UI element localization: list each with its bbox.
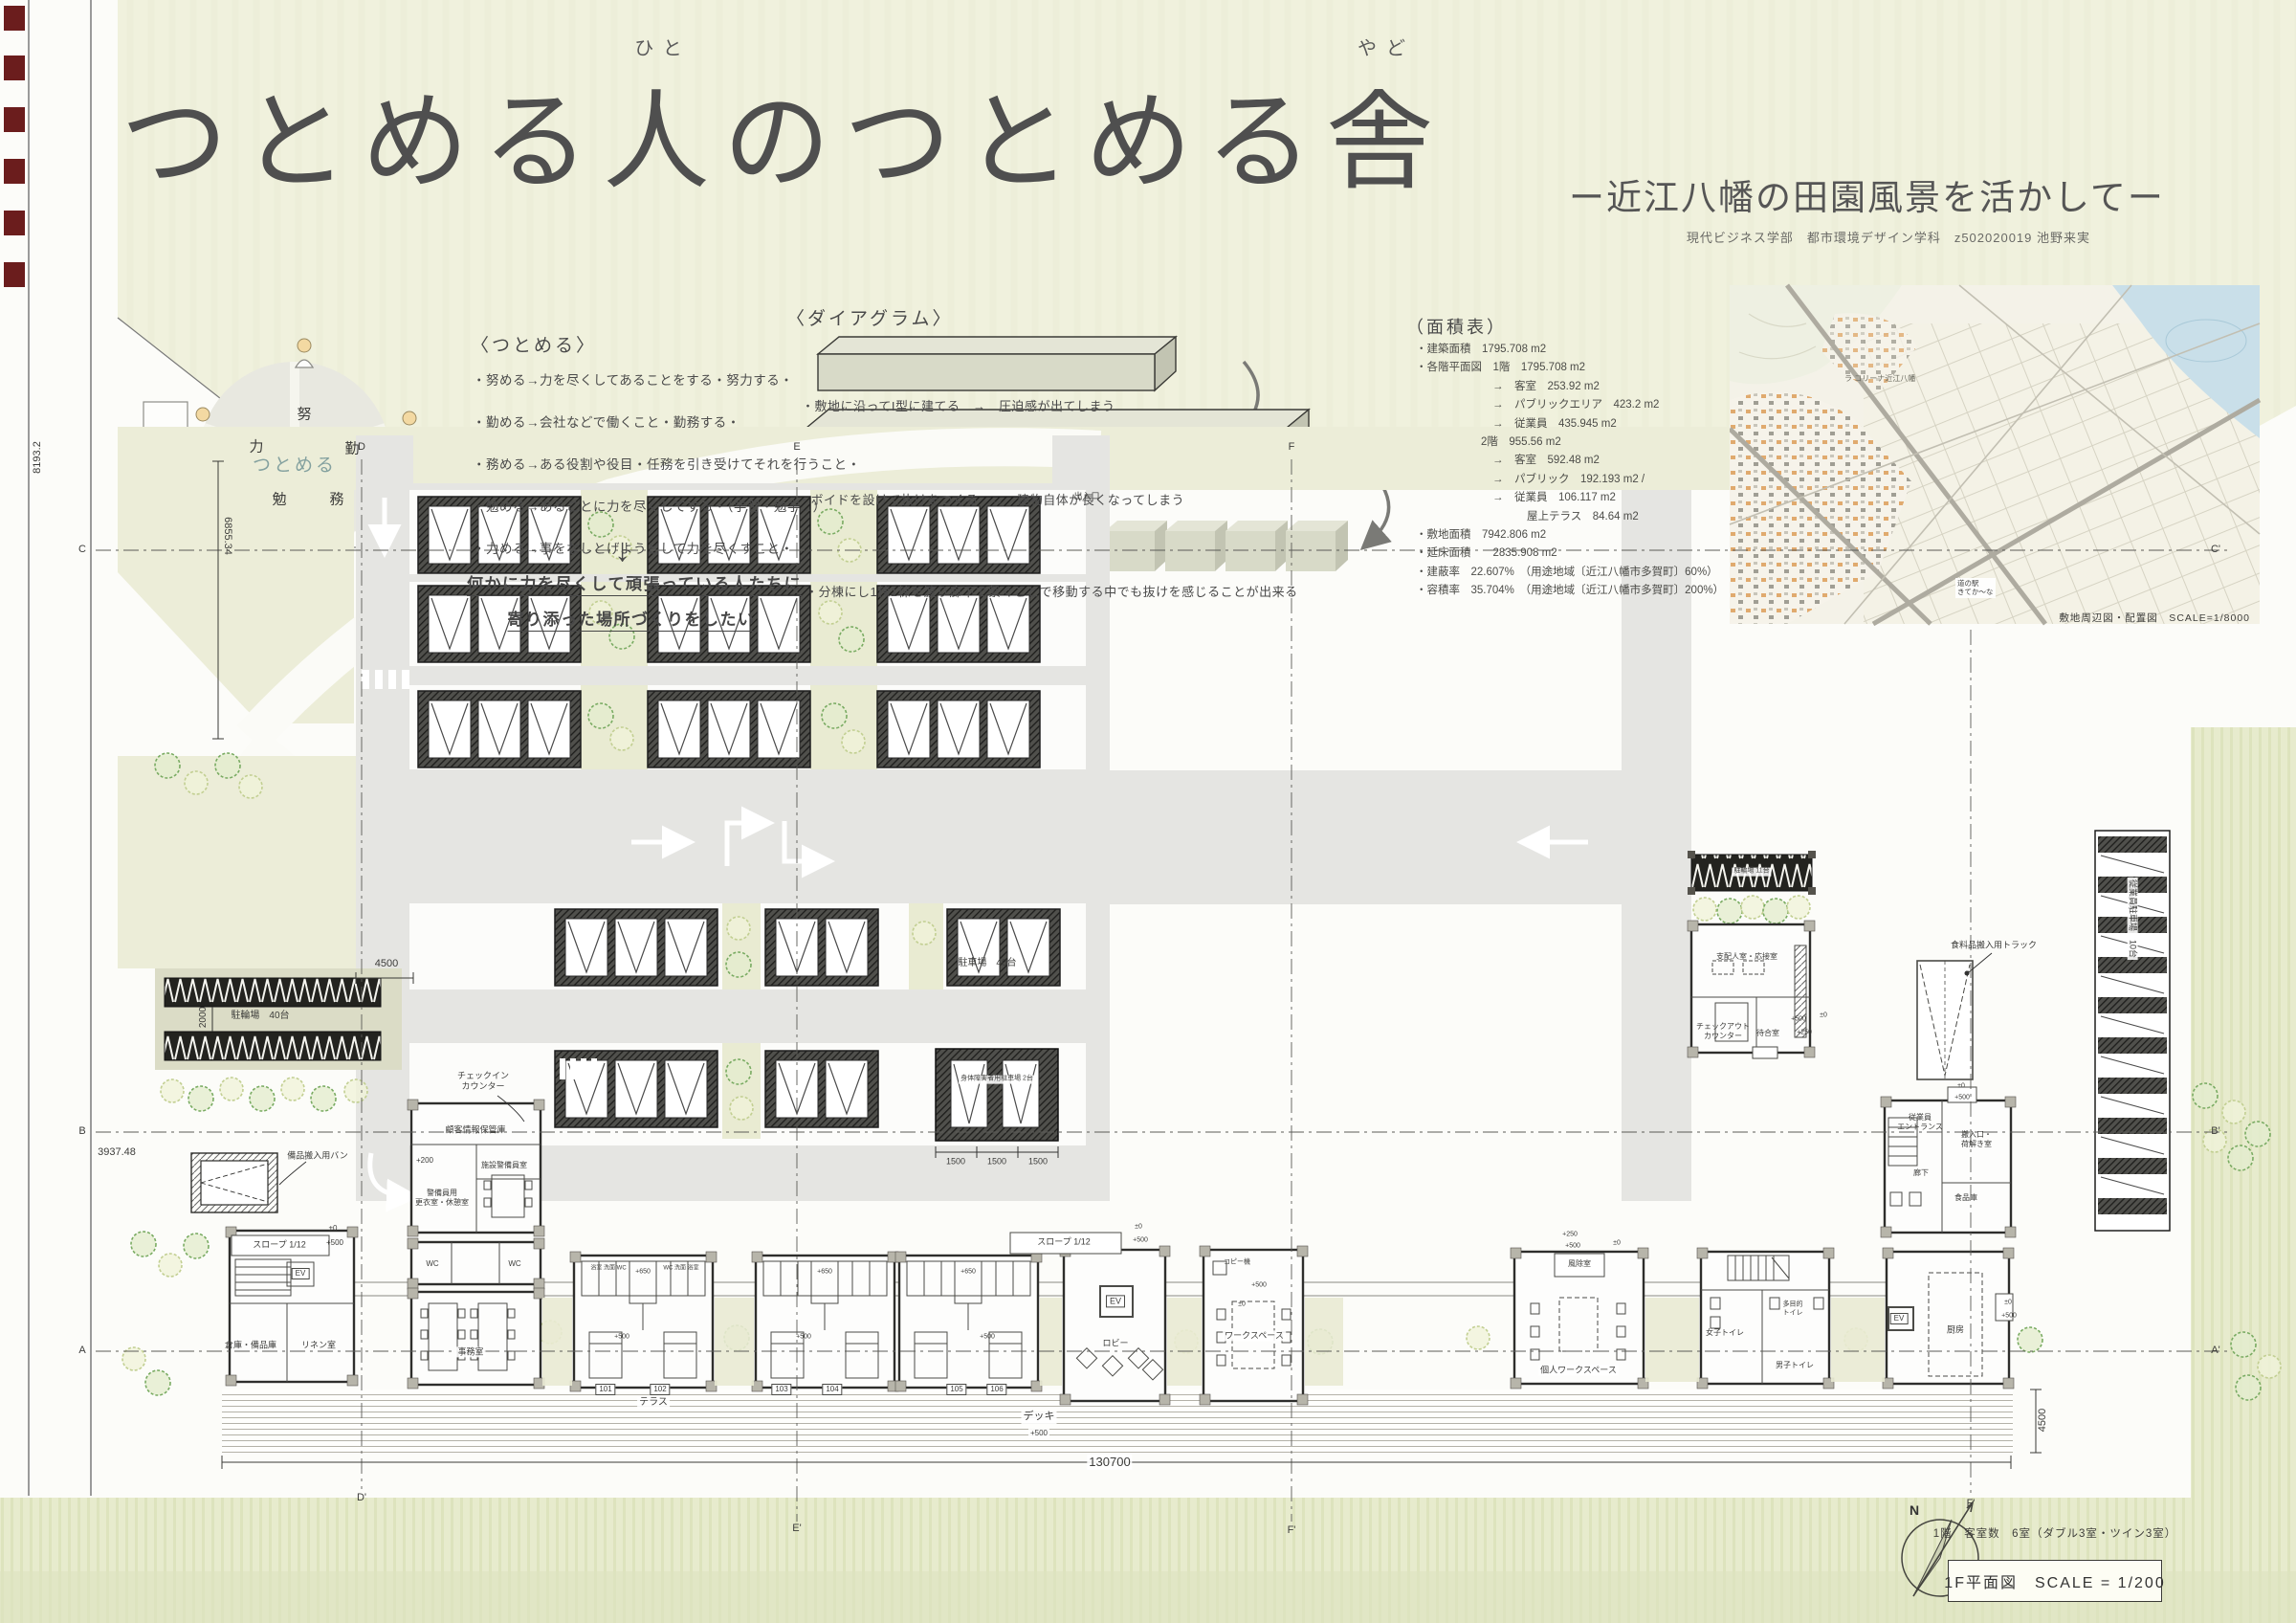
map-poi-michinoeki: 道の駅 きてか〜な — [1955, 578, 1996, 598]
area-table-row: → 客室 592.48 m2 — [1416, 452, 1724, 470]
concept-conclusion: 何かに力を尽くして頑張っている人たちに 寄り添った場所づくりをしたい — [467, 570, 796, 641]
area-table-row: ・各階平面図 1階 1795.708 m2 — [1416, 359, 1724, 377]
area-table-row: → パブリック 192.193 m2 / — [1416, 471, 1724, 489]
area-table-row: → パブリックエリア 423.2 m2 — [1416, 396, 1724, 414]
north-label: N — [1910, 1502, 1919, 1518]
diagram-caption-3: ・分棟にし1棟1棟を渡り廊下で繋ぐことで移動する中でも抜けを感じることが出来る — [806, 582, 1298, 600]
conclusion-line-2: 寄り添った場所づくりをしたい — [467, 606, 796, 630]
area-table: ・建築面積 1795.708 m2・各階平面図 1階 1795.708 m2→ … — [1416, 341, 1724, 600]
furigana: ひと — [634, 33, 691, 60]
list-item: ・務める→ある役割や役目・任務を引き受けてそれを行うこと・ — [473, 454, 861, 473]
page-subtitle: ー近江八幡の田園風景を活かしてー — [1569, 168, 2165, 220]
author-credit: 現代ビジネス学部 都市環境デザイン学科 z502020019 池野来実 — [1687, 228, 2090, 246]
list-item: ・努める→力を尽くしてあることをする・努力する・ — [473, 369, 861, 389]
title-part: つとめる — [121, 56, 603, 211]
area-table-row: → 客室 253.92 m2 — [1416, 378, 1724, 396]
area-table-row: ・建築面積 1795.708 m2 — [1416, 341, 1724, 359]
drawing-title: 1F平面図 SCALE = 1/200 — [1944, 1569, 2165, 1592]
down-arrow-icon: ↓ — [614, 532, 630, 569]
furigana: やど — [1358, 33, 1415, 60]
area-table-row: ・延床面積 2835.908 m2 — [1416, 545, 1724, 563]
area-table-row: → 従業員 106.117 m2 — [1416, 489, 1724, 507]
list-item: ・力める→事をなしとげようとして力を尽くすこと・ — [473, 538, 861, 557]
area-table-heading: （面積表） — [1406, 314, 1507, 339]
conclusion-line-1: 何かに力を尽くして頑張っている人たちに — [467, 570, 796, 594]
page-title: つとめる人ひとのつとめる舎やど — [121, 56, 1446, 211]
presentation-board: つとめる人ひとのつとめる舎やど ー近江八幡の田園風景を活かしてー 現代ビジネス学… — [0, 0, 2296, 1623]
map-caption: 敷地周辺図・配置図 SCALE=1/8000 — [2059, 611, 2250, 625]
concept-section-heading: 〈つとめる〉 — [471, 331, 597, 357]
list-item: ・勤める→会社などで働くこと・勤務する・ — [473, 411, 861, 431]
area-table-row: → 従業員 435.945 m2 — [1416, 415, 1724, 434]
area-table-row: 2階 955.56 m2 — [1416, 434, 1724, 452]
diagram-section-heading: 〈ダイアグラム〉 — [786, 304, 953, 330]
map-poi-lacollina: ラ コリーナ近江八幡 — [1844, 373, 1915, 384]
area-table-row: 屋上テラス 84.64 m2 — [1416, 508, 1724, 526]
room-count-note: 1階 客室数 6室（ダブル3室・ツイン3室） — [1933, 1525, 2177, 1541]
drawing-title-box: 1F平面図 SCALE = 1/200 — [1948, 1560, 2162, 1602]
diagram-caption-2: ・ボイドを設けて抜けをつくる → 建物自体が長くなってしまう — [798, 490, 1184, 508]
diagram-caption-1: ・敷地に沿ってI型に建てる → 圧迫感が出てしまう — [802, 396, 1115, 414]
title-part: のつとめる — [723, 56, 1326, 211]
area-table-row: ・容積率 35.704% （用途地域〔近江八幡市多賀町〕200%） — [1416, 582, 1724, 600]
area-table-row: ・建蔽率 22.607% （用途地域〔近江八幡市多賀町〕60%） — [1416, 564, 1724, 582]
area-table-row: ・敷地面積 7942.806 m2 — [1416, 526, 1724, 545]
title-part: 舎やど — [1326, 56, 1446, 211]
title-part: 人ひと — [603, 56, 723, 211]
